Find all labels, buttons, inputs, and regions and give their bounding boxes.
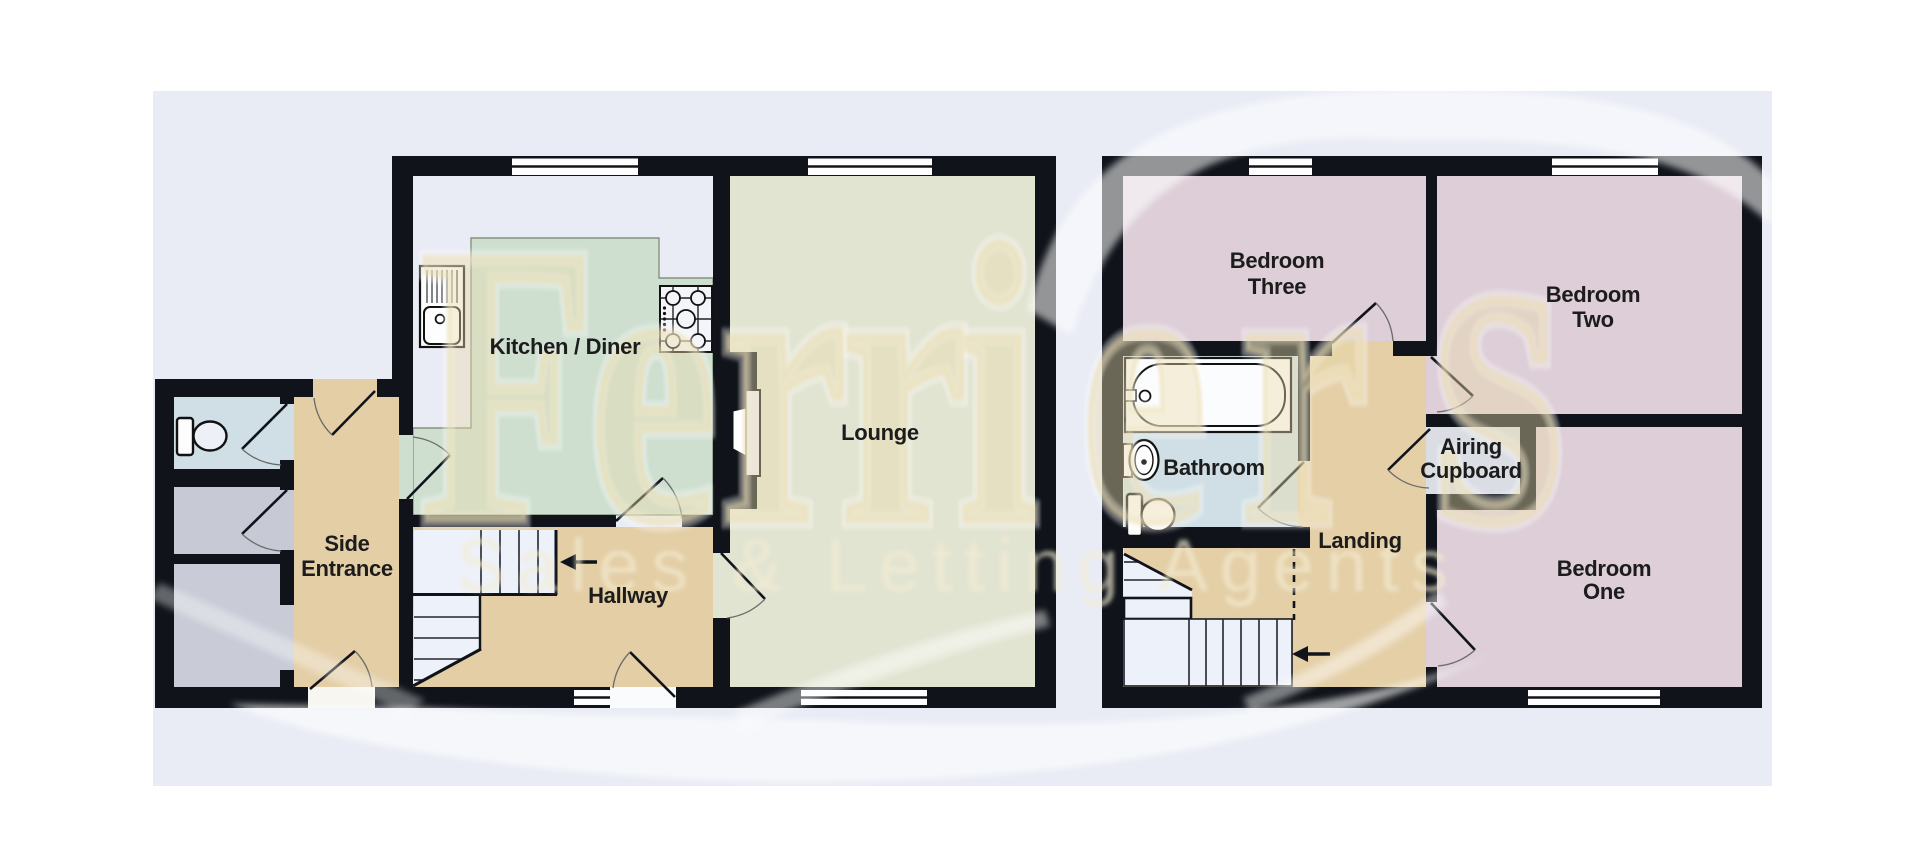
svg-text:Lounge: Lounge — [841, 420, 919, 445]
svg-text:Cupboard: Cupboard — [1420, 458, 1521, 483]
svg-text:Three: Three — [1248, 274, 1306, 299]
svg-text:Hallway: Hallway — [588, 583, 669, 608]
svg-text:Entrance: Entrance — [301, 556, 393, 581]
svg-text:Kitchen / Diner: Kitchen / Diner — [490, 334, 641, 359]
svg-text:One: One — [1583, 579, 1625, 604]
svg-text:Bedroom: Bedroom — [1230, 248, 1324, 273]
svg-text:Bedroom: Bedroom — [1546, 282, 1640, 307]
svg-text:Landing: Landing — [1318, 528, 1401, 553]
svg-text:Bedroom: Bedroom — [1557, 556, 1651, 581]
svg-text:Bathroom: Bathroom — [1163, 455, 1265, 480]
svg-text:Airing: Airing — [1440, 434, 1502, 459]
svg-text:Side: Side — [324, 531, 369, 556]
svg-text:Two: Two — [1572, 307, 1613, 332]
